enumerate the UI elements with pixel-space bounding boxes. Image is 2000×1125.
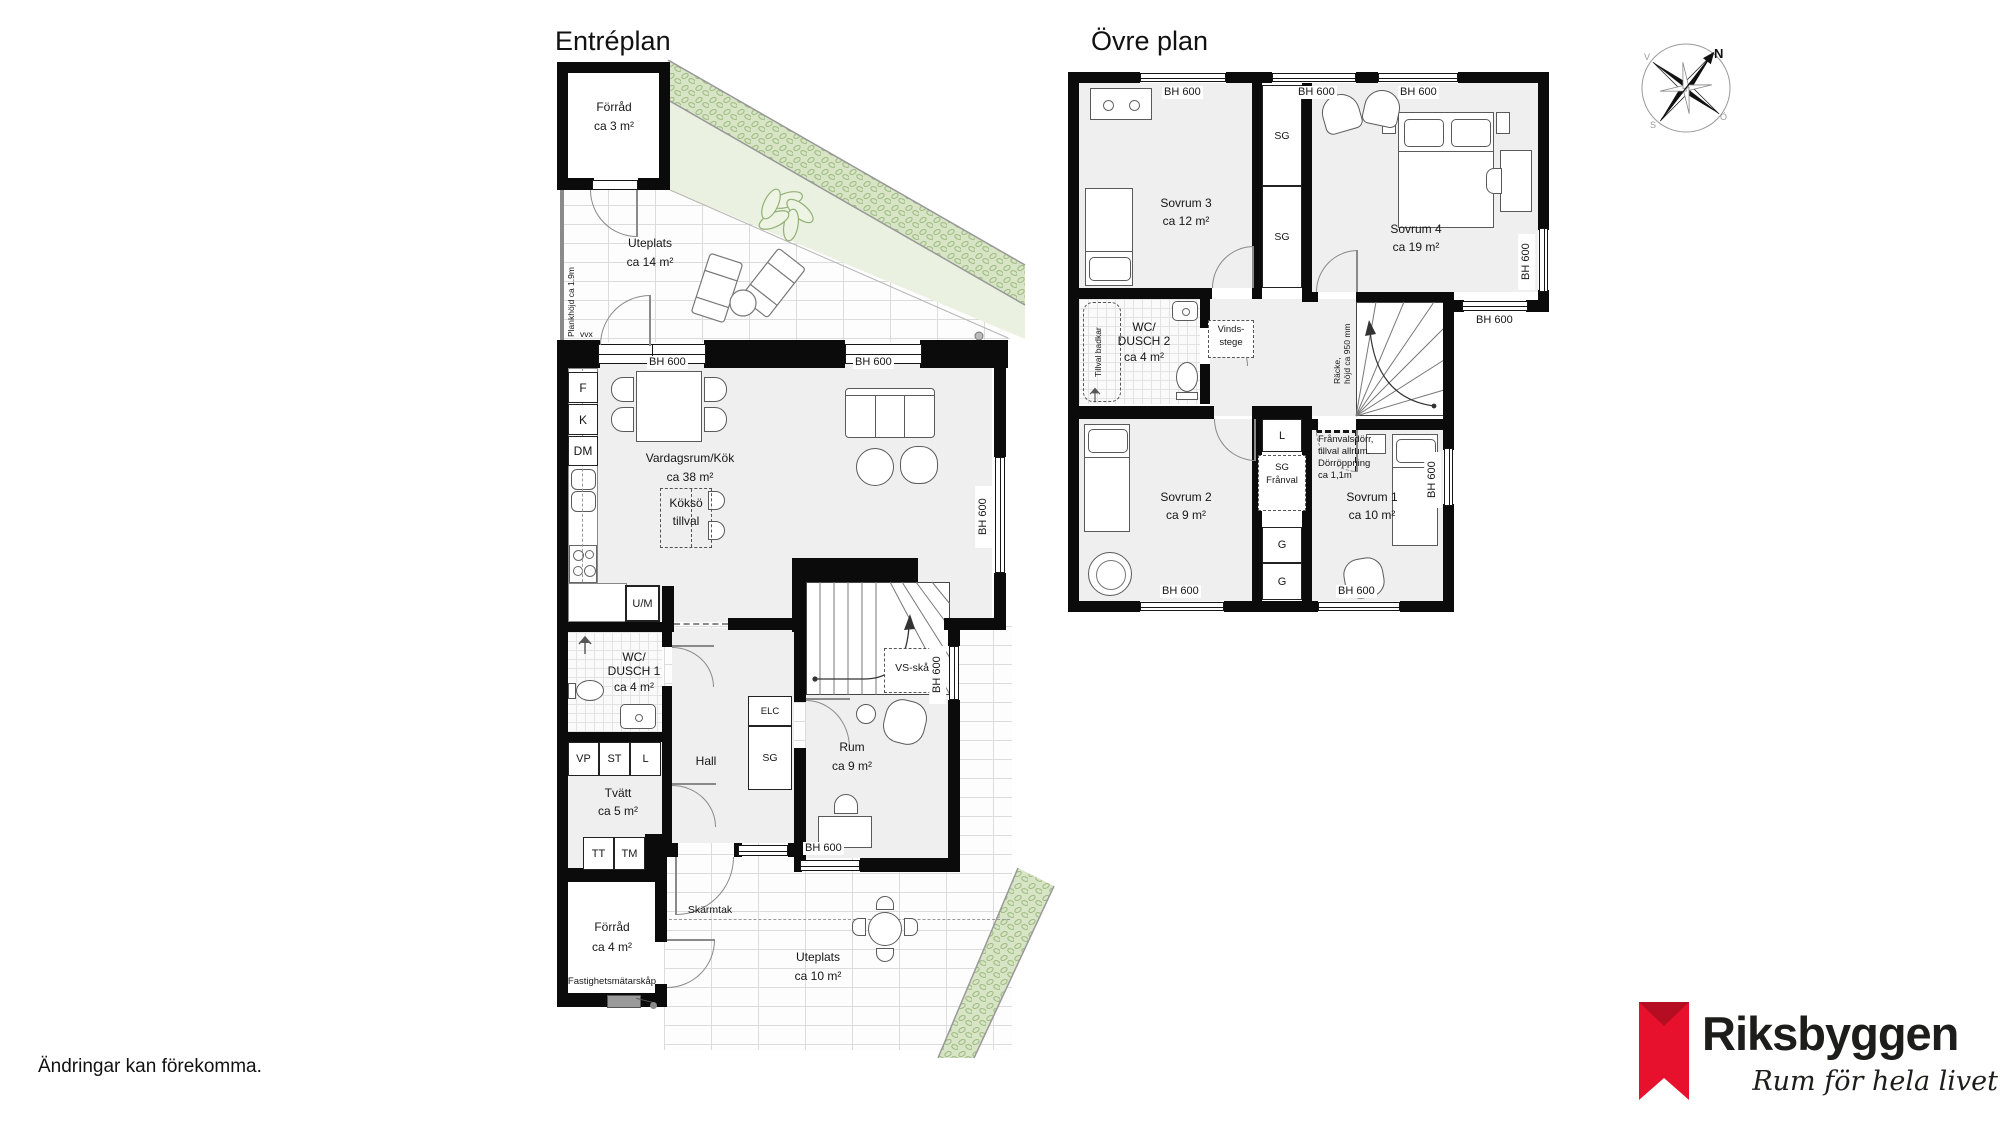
sovrum1-area: ca 10 m² [1338, 508, 1406, 522]
garden-chair [904, 918, 918, 936]
downpipe-dot [975, 332, 983, 340]
bed-sovrum3 [1085, 188, 1133, 286]
window-bh600-label: BH 600 [1160, 585, 1201, 598]
window-bh600-label: BH 600 [975, 486, 992, 548]
sovrum3-area: ca 12 m² [1152, 214, 1220, 228]
elc-cabinet: ELC [748, 696, 792, 726]
rum-window-right [949, 646, 959, 700]
forrad4-name: Förråd [585, 920, 639, 934]
franval-note-2: tillval allrum. [1318, 446, 1400, 457]
window-bh600-label: BH 600 [1398, 86, 1439, 99]
sovrum2-area: ca 9 m² [1154, 508, 1218, 522]
fridge: F [568, 372, 598, 403]
toilet-cistern [1176, 392, 1198, 400]
sovrum3-name: Sovrum 3 [1150, 196, 1222, 210]
skarmtak-label: Skärmtak [684, 904, 736, 917]
riksbyggen-logo: Riksbyggen Rum för hela livet [1636, 1000, 2000, 1120]
window [1140, 602, 1224, 611]
freezer: K [568, 404, 598, 435]
garden-bottom [930, 858, 1070, 1060]
sg-franval-l2: Frånval [1258, 475, 1306, 486]
toilet-icon [576, 680, 604, 701]
disclaimer-text: Ändringar kan förekomma. [38, 1056, 262, 1078]
dining-chair [611, 377, 634, 402]
forrad3-name: Förråd [587, 100, 641, 114]
attic-ladder-label1: Vinds- [1208, 324, 1254, 335]
rum-window-bottom [800, 860, 860, 871]
dining-chair [704, 377, 727, 402]
window-bh600-label: BH 600 [647, 356, 688, 369]
marker-dot [650, 1002, 657, 1009]
rum9-area: ca 9 m² [814, 759, 890, 773]
ovreplan-title: Övre plan [1091, 26, 1208, 57]
rum9-name: Rum [822, 740, 882, 754]
shower-icon [576, 634, 594, 656]
uteplats14-area: ca 14 m² [598, 255, 702, 269]
round-chair [1088, 552, 1132, 596]
franval-note-4: ca 1,1m [1318, 470, 1400, 481]
franval-note-1: Frånvalsdörr, [1318, 434, 1400, 445]
window-bh600-label: BH 600 [1162, 86, 1203, 99]
forrad3-door-opening [592, 180, 638, 190]
entreplan-title: Entréplan [555, 26, 671, 57]
tvatt-name: Tvätt [596, 786, 640, 800]
window-right [995, 457, 1005, 573]
garden-chair [852, 918, 866, 936]
fence-height-label: Plankhöjd ca 1.9m [566, 262, 576, 342]
side-table [856, 704, 876, 724]
hall-label: Hall [682, 754, 730, 768]
vp-cabinet: VP [568, 742, 599, 776]
bed-sovrum2 [1084, 424, 1130, 532]
wc1-l2: DUSCH 1 [598, 664, 670, 678]
hedge-leaf-pattern [938, 868, 1054, 1058]
window-bh600-label: BH 600 [1336, 585, 1377, 598]
wc1-area: ca 4 m² [604, 680, 664, 694]
meter-cabinet-label: Fastighetsmätarskåp [566, 976, 658, 987]
riksbyggen-tagline: Rum för hela livet [1702, 1066, 1998, 1097]
dining-table [636, 371, 702, 442]
garden-chair [876, 896, 894, 910]
window-bh600-label: BH 600 [803, 842, 844, 855]
window [1539, 228, 1548, 292]
window [1272, 73, 1356, 82]
window-bh600-label: BH 600 [1474, 314, 1515, 327]
toilet-cistern [568, 683, 576, 699]
sun-lounger-icon [691, 248, 805, 323]
kokso-label2: tillval [664, 514, 708, 528]
window-bh600-label: BH 600 [1518, 234, 1535, 290]
franval-note-3: Dörröppning [1318, 458, 1400, 469]
riksbyggen-logo-icon [1636, 1002, 1692, 1104]
sovrum4-name: Sovrum 4 [1380, 222, 1452, 236]
toilet-icon [1176, 362, 1198, 392]
sovrum1-name: Sovrum 1 [1336, 490, 1408, 504]
armchair [900, 446, 938, 484]
attic-ladder-label2: stege [1208, 337, 1254, 348]
patio-door-threshold [598, 344, 654, 364]
dishwasher: DM [568, 436, 598, 466]
sovrum2-name: Sovrum 2 [1150, 490, 1222, 504]
st-cabinet: ST [599, 742, 630, 776]
dining-chair [611, 407, 634, 432]
bathtub-option-label: Tillval badkar [1093, 316, 1103, 388]
window-bh600-label: BH 600 [1424, 452, 1441, 508]
window-bh600-label: BH 600 [929, 646, 946, 704]
wc2-l1: WC/ [1116, 320, 1172, 334]
window [1378, 73, 1458, 82]
skarmtak-line [664, 919, 1010, 920]
vardagsrum-area: ca 38 m² [628, 470, 752, 484]
kitchen-counter-bottom [568, 583, 627, 622]
vvx-label: vvx [580, 329, 593, 339]
dryer: TT [583, 837, 614, 870]
forrad3-area: ca 3 m² [585, 119, 643, 133]
desk-chair [834, 794, 858, 814]
nightstand [1496, 112, 1510, 134]
compass-e: Ö [1720, 112, 1727, 122]
garden-table [868, 912, 902, 946]
coffee-table [856, 448, 894, 486]
tvatt-area: ca 5 m² [590, 804, 646, 818]
window-bh600-label: BH 600 [1296, 86, 1337, 99]
sovrum4-area: ca 19 m² [1382, 240, 1450, 254]
garden-table-icon [730, 290, 756, 316]
open-boundary [674, 623, 728, 625]
forrad4-area: ca 4 m² [583, 940, 641, 954]
window [1318, 602, 1400, 611]
compass-s: S [1650, 120, 1656, 130]
window [1140, 73, 1226, 82]
wc1-l1: WC/ [606, 650, 662, 664]
sg-wardrobe: SG [1262, 85, 1302, 186]
compass-n: N [1714, 46, 1723, 61]
wc2-area: ca 4 m² [1114, 350, 1174, 364]
compass-rose: N Ö S V [1638, 40, 1734, 136]
uteplats10-name: Uteplats [766, 950, 870, 964]
compass-w: V [1644, 52, 1650, 62]
vardagsrum-name: Vardagsrum/Kök [628, 451, 752, 465]
uteplats10-area: ca 10 m² [766, 969, 870, 983]
sofa [845, 388, 935, 438]
staircase-ovre [1356, 302, 1444, 416]
sg-wardrobe: SG [1262, 186, 1302, 288]
desk [1500, 150, 1532, 212]
sink-icon [1172, 301, 1198, 321]
window-bh600-label: BH 600 [853, 356, 894, 369]
sg-wardrobe: SG [748, 726, 792, 790]
l-cabinet: L [630, 742, 661, 776]
floorplan-sheet: Entréplan [0, 0, 2000, 1125]
railing-label: Räcke,höjd ca 950 mm [1332, 296, 1352, 384]
dresser [1090, 88, 1152, 120]
g-closet: G [1262, 563, 1302, 600]
riksbyggen-wordmark: Riksbyggen [1702, 1006, 1958, 1061]
washer: TM [614, 837, 645, 870]
wc2-l2: DUSCH 2 [1108, 334, 1180, 348]
l-closet: L [1262, 419, 1302, 452]
oven-micro: U/M [625, 585, 660, 622]
kokso-label: Köksö [664, 496, 708, 510]
uteplats14-name: Uteplats [598, 236, 702, 250]
double-bed [1398, 112, 1494, 228]
sg-franval-l1: SG [1258, 462, 1306, 473]
dining-chair [704, 407, 727, 432]
hall-window [738, 845, 788, 856]
sink-icon [620, 704, 656, 729]
window [1444, 448, 1453, 506]
g-closet: G [1262, 527, 1302, 563]
window [1462, 301, 1528, 311]
desk-chair [1486, 168, 1502, 194]
